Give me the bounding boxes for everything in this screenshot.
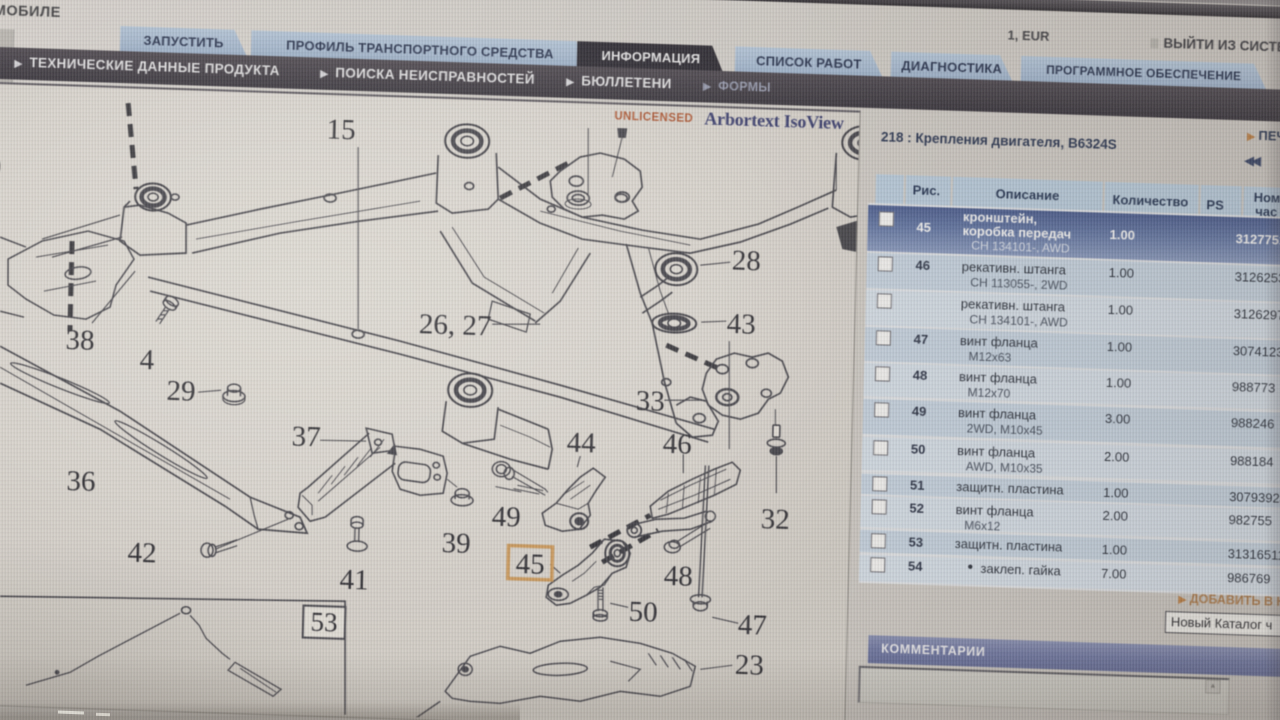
svg-text:53: 53 <box>310 607 338 638</box>
svg-text:38: 38 <box>65 324 95 357</box>
svg-text:32: 32 <box>760 503 790 536</box>
svg-text:15: 15 <box>326 114 356 147</box>
svg-text:33: 33 <box>635 385 665 418</box>
svg-text:37: 37 <box>291 421 321 454</box>
svg-text:43: 43 <box>726 308 756 341</box>
svg-text:45: 45 <box>515 548 545 581</box>
svg-text:41: 41 <box>339 564 369 597</box>
svg-text:29: 29 <box>166 375 196 408</box>
svg-text:50: 50 <box>628 596 658 629</box>
svg-text:0: 0 <box>0 151 2 183</box>
svg-text:48: 48 <box>663 560 693 593</box>
svg-text:26, 27: 26, 27 <box>419 308 492 342</box>
svg-text:44: 44 <box>566 427 596 460</box>
svg-text:49: 49 <box>491 501 521 534</box>
svg-text:46: 46 <box>662 428 692 461</box>
svg-text:42: 42 <box>127 537 157 570</box>
svg-text:47: 47 <box>737 609 767 642</box>
svg-text:36: 36 <box>66 465 96 498</box>
svg-text:28: 28 <box>731 245 761 278</box>
svg-text:23: 23 <box>734 649 764 682</box>
svg-text:39: 39 <box>441 527 471 560</box>
svg-text:4: 4 <box>139 344 155 376</box>
